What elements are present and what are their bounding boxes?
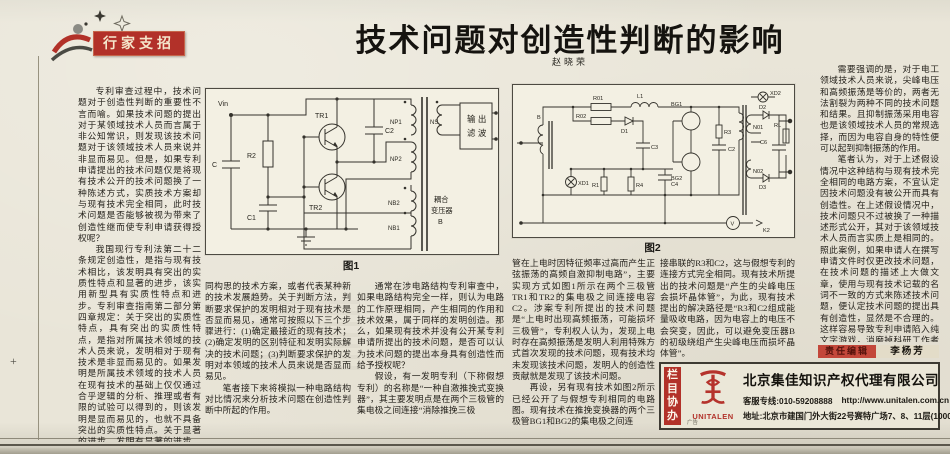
- paragraph: 专利审查过程中，技术问题对于创造性判断的重要性不言而喻。如果技术问题的提出对于某…: [78, 86, 201, 244]
- paragraph: 需要强调的是，对于电工领域技术人员来说，尖峰电压和高频振荡是等价的，两者无法割裂…: [820, 64, 939, 154]
- sponsor-ad-box: 栏目协办 UNITALEN 广告 北京集佳知识产权代理有限公司 客服专线:010…: [659, 362, 940, 430]
- sponsor-strip: 栏目协办: [664, 367, 681, 425]
- paragraph: 笔者接下来将模拟一种电路结构对比情况来分析技术问题在创造性判断中所起的作用。: [205, 383, 351, 417]
- figure2-caption: 图2: [512, 240, 793, 255]
- article-column-6: 需要强调的是，对于电工领域技术人员来说，尖峰电压和高频振荡是等价的，两者无法割裂…: [820, 64, 939, 342]
- component-label: C6: [760, 140, 767, 146]
- register-mark: +: [10, 354, 17, 369]
- newspaper-page: + 行家支招 技术问题对创造性判断的影响 赵晓荣 专利审查过程中，技术问题对于创…: [0, 0, 950, 454]
- component-label: R4: [636, 183, 643, 189]
- component-label: NB2: [388, 201, 400, 207]
- component-label: V: [731, 222, 735, 228]
- responsible-editor-label: 责任编辑: [818, 345, 876, 358]
- sponsor-address: 地址:北京市建国门外大街22号赛特广场7、8、11层(100004): [743, 410, 933, 422]
- figure1-caption: 图1: [205, 258, 497, 273]
- component-label: D2: [759, 105, 766, 111]
- component-label: R2: [247, 153, 256, 160]
- column-badge: 行家支招: [93, 31, 185, 56]
- component-label: D1: [621, 129, 628, 135]
- component-label: TR2: [309, 205, 322, 212]
- component-label: N02: [753, 169, 763, 175]
- responsible-editor-name: 李杨芳: [876, 345, 939, 358]
- component-label: NB1: [388, 226, 400, 232]
- unitalen-logo: UNITALEN: [686, 368, 740, 421]
- component-label: NP1: [390, 120, 402, 126]
- unitalen-logo-icon: [696, 368, 730, 406]
- responsible-editor-bar: 责任编辑 李杨芳: [818, 345, 939, 358]
- article-column-3: 通常在涉电路结构专利审查中，如果电路结构完全一样，则认为电路的工作原理相同，产生…: [357, 281, 504, 442]
- component-label: R1: [592, 183, 599, 189]
- sponsor-info: 北京集佳知识产权代理有限公司 客服专线:010-59208888 http://…: [743, 369, 933, 422]
- component-label: BG1: [671, 102, 682, 108]
- filter-box-label: 输 出: [467, 114, 486, 124]
- component-label: C: [212, 162, 217, 169]
- article-column-1: 专利审查过程中，技术问题对于创造性判断的重要性不言而喻。如果技术问题的提出对于某…: [78, 86, 201, 442]
- figure2-circuit-diagram: B R01 R02 D1 L1 C3 XD1 R1 R4 C4 BG1 BG2 …: [512, 84, 795, 238]
- bottom-rule-thick: [0, 444, 950, 446]
- paragraph: 笔者认为，对于上述假设情况中这种结构与现有技术完全相同的电路方案，不宜认定因技术…: [820, 154, 939, 342]
- component-label: B: [537, 115, 541, 121]
- component-label: D3: [759, 185, 766, 191]
- paragraph: 再设，另有现有技术如图2所示已经公开了与假想专利相同的电路图。现有技术在推挽变换…: [512, 382, 655, 427]
- component-label: XD1: [578, 181, 589, 187]
- component-label: XD2: [770, 91, 781, 97]
- paragraph: 同构思的技术方案，或者代表某种新的技术发展趋势。关于判断方法，判断要求保护的发明…: [205, 281, 351, 383]
- component-label: NP2: [390, 157, 402, 163]
- component-label: R01: [593, 96, 603, 102]
- component-label: Vin: [218, 101, 228, 108]
- component-label: C3: [651, 145, 658, 151]
- component-label: C1: [247, 215, 256, 222]
- article-column-2: 同构思的技术方案，或者代表某种新的技术发展趋势。关于判断方法，判断要求保护的发明…: [205, 281, 351, 442]
- component-label: RL: [774, 123, 781, 129]
- figure1-circuit-diagram: Vin C R2 C1 TR1 TR2 C2 NP1 NP2 NB2 NB1 N…: [205, 88, 499, 255]
- transformer-label: B: [438, 217, 443, 226]
- component-label: C4: [671, 182, 678, 188]
- component-label: R3: [724, 130, 731, 136]
- component-label: NS: [430, 120, 438, 126]
- article-author: 赵晓荣: [355, 55, 785, 68]
- component-label: R02: [576, 114, 586, 120]
- component-label: BG2: [671, 176, 682, 182]
- sponsor-company-name: 北京集佳知识产权代理有限公司: [743, 369, 933, 389]
- paragraph: 通常在涉电路结构专利审查中，如果电路结构完全一样，则认为电路的工作原理相同，产生…: [357, 281, 504, 371]
- sponsor-website: http://www.unitalen.com.cn: [841, 395, 949, 407]
- component-label: L1: [637, 94, 643, 100]
- article-column-4: 管在上电时因特征频率过高而产生正弦振荡的高频自激抑制电路”，主要实现方式如图1所…: [512, 258, 655, 444]
- left-column-rule: [38, 56, 39, 440]
- article-title: 技术问题对创造性判断的影响: [355, 15, 785, 60]
- component-label: C2: [385, 128, 394, 135]
- transformer-label: 变压器: [431, 206, 453, 215]
- paragraph: 管在上电时因特征频率过高而产生正弦振荡的高频自激抑制电路”，主要实现方式如图1所…: [512, 258, 655, 382]
- transformer-label: 耦合: [434, 195, 448, 204]
- page-edge: [0, 448, 950, 454]
- paragraph: 我国现行专利法第二十二条规定创造性，是指与现有技术相比，该发明具有突出的实质性特…: [78, 244, 201, 442]
- paragraph: 假设，有一发明专利（下称假想专利）的名称是“一种自激推挽式变换器”，其主要发明点…: [357, 371, 504, 416]
- component-label: N01: [753, 125, 763, 131]
- component-label: K2: [763, 228, 770, 234]
- filter-box-label: 滤 波: [467, 128, 487, 138]
- ad-mark: 广告: [687, 418, 698, 426]
- article-column-5: 接串联的R3和C2，这与假想专利的连接方式完全相同。现有技术所提出的技术问题是“…: [660, 258, 795, 360]
- sponsor-phone: 客服专线:010-59208888: [743, 395, 832, 407]
- component-label: C2: [728, 147, 735, 153]
- paragraph: 接串联的R3和C2，这与假想专利的连接方式完全相同。现有技术所提出的技术问题是“…: [660, 258, 795, 360]
- component-label: TR1: [315, 113, 328, 120]
